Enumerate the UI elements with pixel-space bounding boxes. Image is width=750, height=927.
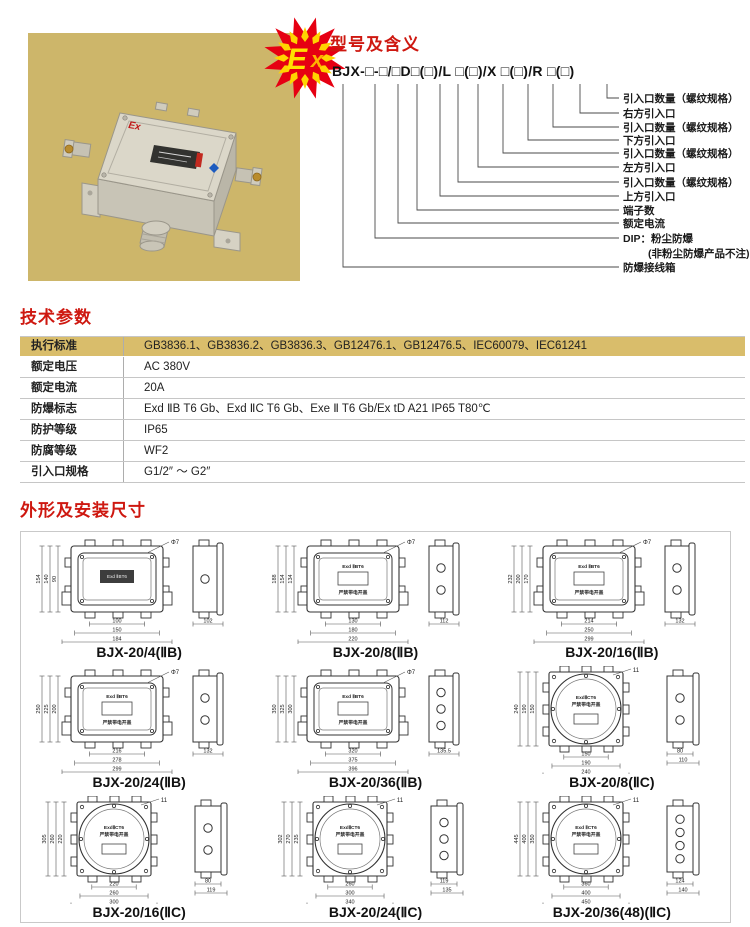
svg-text:80: 80 [677,749,683,755]
svg-text:Φ7: Φ7 [171,670,180,676]
svg-text:220: 220 [109,882,118,888]
row-label: 额定电流 [20,378,124,398]
dimension-figure: ExdⅡCT6严禁带电开盖1115019024015019024080110 B… [494,662,730,792]
dimension-figure: ExdⅡCT6严禁带电开盖11235270302260300340119135 … [257,792,493,922]
svg-text:严禁带电开盖: 严禁带电开盖 [574,589,604,596]
dimension-figure: Exd ⅡBT6Φ790140154100150184102 BJX-20/4(… [21,532,257,662]
figure-label: BJX-20/24(ⅡB) [93,774,186,791]
model-callout-label: 额定电流 [623,216,665,231]
svg-text:214: 214 [585,619,594,625]
drawing-bjx-20-4: Exd ⅡBT6Φ790140154100150184102 [27,536,252,644]
svg-text:112: 112 [440,619,449,625]
svg-text:190: 190 [582,761,591,767]
svg-text:严禁带电开盖: 严禁带电开盖 [571,831,601,838]
svg-text:260: 260 [345,882,354,888]
svg-text:严禁带电开盖: 严禁带电开盖 [98,831,128,838]
figure-label: BJX-20/36(48)(ⅡC) [553,904,671,921]
svg-text:Exd ⅡBT6: Exd ⅡBT6 [106,693,128,700]
figure-label: BJX-20/4(ⅡB) [96,644,181,661]
svg-text:132: 132 [676,619,685,625]
row-label: 防爆标志 [20,399,124,419]
row-label: 引入口规格 [20,462,124,482]
svg-text:严禁带电开盖: 严禁带电开盖 [338,589,368,596]
svg-text:305: 305 [42,834,48,843]
dimension-figure: Exd ⅡBT6严禁带电开盖Φ7134154188130180220112 BJ… [257,532,493,662]
dimension-figure: Exd ⅡCT6严禁带电开盖11350400445360400450124140… [494,792,730,922]
svg-text:270: 270 [286,834,292,843]
table-row: 引入口规格 G1/2″ ～ G2″ [20,462,745,483]
svg-text:Ex: Ex [127,120,141,133]
svg-text:225: 225 [44,704,50,713]
model-callout-label: 左方引入口 [623,160,676,175]
row-value: IP65 [124,420,168,440]
svg-text:E: E [287,43,308,76]
svg-text:250: 250 [36,704,42,713]
svg-text:11: 11 [161,798,168,804]
row-value: 20A [124,378,164,398]
svg-text:135: 135 [442,888,451,894]
svg-text:200: 200 [516,574,522,583]
table-row: 防护等级 IP65 [20,420,745,441]
drawing-bjx-20-36b: Exd ⅡBT6严禁带电开盖Φ7300325350320375396135.5 [263,666,488,774]
drawing-bjx-20-8b: Exd ⅡBT6严禁带电开盖Φ7134154188130180220112 [263,536,488,644]
row-label: 额定电压 [20,357,124,377]
svg-text:216: 216 [112,749,121,755]
svg-text:124: 124 [676,879,685,885]
svg-text:x: x [310,47,324,72]
table-row: 额定电压 AC 380V [20,357,745,378]
figure-label: BJX-20/8(ⅡB) [333,644,418,661]
svg-text:Exd ⅡBT6: Exd ⅡBT6 [579,563,601,570]
svg-text:220: 220 [58,834,64,843]
svg-text:Φ7: Φ7 [643,540,652,546]
svg-text:150: 150 [530,704,536,713]
svg-text:375: 375 [348,758,357,764]
table-row: 执行标准 GB3836.1、GB3836.2、GB3836.3、GB12476.… [20,337,745,357]
drawing-bjx-20-16b: Exd ⅡBT6严禁带电开盖Φ7170200232214250299132 [499,536,724,644]
svg-text:130: 130 [348,619,357,625]
svg-text:100: 100 [112,619,121,625]
svg-text:Exd ⅡCT6: Exd ⅡCT6 [576,824,598,831]
svg-text:11: 11 [633,798,640,804]
svg-text:299: 299 [112,767,121,773]
svg-text:Exd ⅡBT6: Exd ⅡBT6 [107,574,127,579]
svg-text:严禁带电开盖: 严禁带电开盖 [571,701,601,708]
svg-text:严禁带电开盖: 严禁带电开盖 [101,719,131,726]
svg-text:300: 300 [288,704,294,713]
tech-params-title: 技术参数 [20,303,92,328]
svg-text:154: 154 [36,574,42,583]
drawing-bjx-20-8c: ExdⅡCT6严禁带电开盖1115019024015019024080110 [499,666,724,774]
drawing-bjx-20-24b: Exd ⅡBT6严禁带电开盖Φ7200225250216278299132 [27,666,252,774]
row-value: GB3836.1、GB3836.2、GB3836.3、GB12476.1、GB1… [124,337,587,356]
svg-text:Φ7: Φ7 [407,540,416,546]
svg-text:350: 350 [272,704,278,713]
model-callout-label: 右方引入口 [623,106,676,121]
svg-text:396: 396 [348,767,357,773]
table-row: 防腐等级 WF2 [20,441,745,462]
product-photo: Ex Ex [28,33,300,281]
model-callout-label: 上方引入口 [623,189,676,204]
junction-box-image: Ex [28,33,300,281]
svg-text:严禁带电开盖: 严禁带电开盖 [338,719,368,726]
svg-text:135.5: 135.5 [437,749,451,755]
svg-text:150: 150 [112,628,121,634]
figure-label: BJX-20/8(ⅡC) [569,774,654,791]
svg-text:320: 320 [348,749,357,755]
svg-text:240: 240 [514,704,520,713]
model-callout-label: 引入口数量（螺纹规格） [623,146,739,161]
svg-text:11: 11 [397,798,404,804]
svg-text:200: 200 [52,704,58,713]
svg-text:119: 119 [206,888,215,894]
row-label: 防护等级 [20,420,124,440]
svg-text:119: 119 [440,879,449,885]
svg-text:11: 11 [633,668,640,674]
svg-text:260: 260 [109,891,118,897]
row-value: WF2 [124,441,168,461]
svg-text:250: 250 [585,628,594,634]
svg-text:300: 300 [345,891,354,897]
model-callout-label: 引入口数量（螺纹规格） [623,91,739,106]
svg-text:110: 110 [679,758,688,764]
svg-text:140: 140 [44,574,50,583]
dimension-drawings-panel: Exd ⅡBT6Φ790140154100150184102 BJX-20/4(… [20,531,731,923]
drawing-bjx-20-24c: ExdⅡCT6严禁带电开盖11235270302260300340119135 [263,796,488,904]
svg-text:Exd ⅡBT6: Exd ⅡBT6 [342,693,364,700]
dimension-figure: Exd ⅡBT6严禁带电开盖Φ7300325350320375396135.5 … [257,662,493,792]
svg-text:190: 190 [522,704,528,713]
svg-text:ExdⅡCT6: ExdⅡCT6 [340,824,361,831]
svg-text:134: 134 [288,574,294,583]
svg-text:ExdⅡCT6: ExdⅡCT6 [104,824,125,831]
svg-text:188: 188 [272,574,278,583]
dimensions-title: 外形及安装尺寸 [20,496,146,521]
dimension-figure: ExdⅡCT6严禁带电开盖1122026030522026030080119 B… [21,792,257,922]
svg-text:180: 180 [348,628,357,634]
model-meaning-section: 型号及含义 BJX-□-□/□D□(□)/L □(□)/X □(□)/R □(□… [330,30,750,288]
svg-text:Φ7: Φ7 [407,670,416,676]
svg-text:278: 278 [112,758,121,764]
svg-text:360: 360 [582,882,591,888]
svg-text:184: 184 [112,637,121,643]
svg-text:302: 302 [278,834,284,843]
svg-text:260: 260 [50,834,56,843]
svg-text:235: 235 [294,834,300,843]
tech-params-table: 执行标准 GB3836.1、GB3836.2、GB3836.3、GB12476.… [20,336,745,483]
svg-text:400: 400 [582,891,591,897]
svg-text:102: 102 [203,619,212,625]
svg-text:150: 150 [582,752,591,758]
row-value: Exd ⅡB T6 Gb、Exd ⅡC T6 Gb、Exe Ⅱ T6 Gb/Ex… [124,399,491,419]
catalog-page: Ex Ex 型号及含义 BJX-□-□/□D□(□)/L □(□)/X □(□)… [0,0,750,927]
svg-text:132: 132 [203,749,212,755]
model-callout-label: 防爆接线箱 [623,260,676,275]
svg-text:140: 140 [679,888,688,894]
drawing-bjx-20-16c: ExdⅡCT6严禁带电开盖1122026030522026030080119 [27,796,252,904]
svg-text:80: 80 [205,879,211,885]
svg-text:400: 400 [522,834,528,843]
svg-text:325: 325 [280,704,286,713]
row-label: 防腐等级 [20,441,124,461]
model-callout-label: 引入口数量（螺纹规格） [623,175,739,190]
svg-text:严禁带电开盖: 严禁带电开盖 [335,831,365,838]
svg-text:154: 154 [280,574,286,583]
svg-text:299: 299 [585,637,594,643]
svg-text:232: 232 [508,574,514,583]
dimension-figure: Exd ⅡBT6严禁带电开盖Φ7170200232214250299132 BJ… [494,532,730,662]
figure-label: BJX-20/24(ⅡC) [329,904,422,921]
model-callout-label: DIP：粉尘防爆 [623,231,693,246]
figure-label: BJX-20/16(ⅡC) [93,904,186,921]
svg-text:Φ7: Φ7 [171,540,180,546]
table-row: 额定电流 20A [20,378,745,399]
row-value: G1/2″ ～ G2″ [124,462,210,482]
svg-text:ExdⅡCT6: ExdⅡCT6 [576,694,597,701]
svg-text:Exd ⅡBT6: Exd ⅡBT6 [342,563,364,570]
drawing-bjx-20-36c: Exd ⅡCT6严禁带电开盖11350400445360400450124140 [499,796,724,904]
dimension-figure: Exd ⅡBT6严禁带电开盖Φ7200225250216278299132 BJ… [21,662,257,792]
svg-text:445: 445 [514,834,520,843]
svg-text:170: 170 [524,574,530,583]
row-value: AC 380V [124,357,190,377]
svg-text:90: 90 [52,576,58,582]
row-label: 执行标准 [20,337,124,356]
figure-label: BJX-20/16(ⅡB) [565,644,658,661]
svg-text:220: 220 [348,637,357,643]
svg-text:350: 350 [530,834,536,843]
table-row: 防爆标志 Exd ⅡB T6 Gb、Exd ⅡC T6 Gb、Exe Ⅱ T6 … [20,399,745,420]
figure-label: BJX-20/36(ⅡB) [329,774,422,791]
model-callout-note: (非粉尘防爆产品不注) [648,246,750,261]
